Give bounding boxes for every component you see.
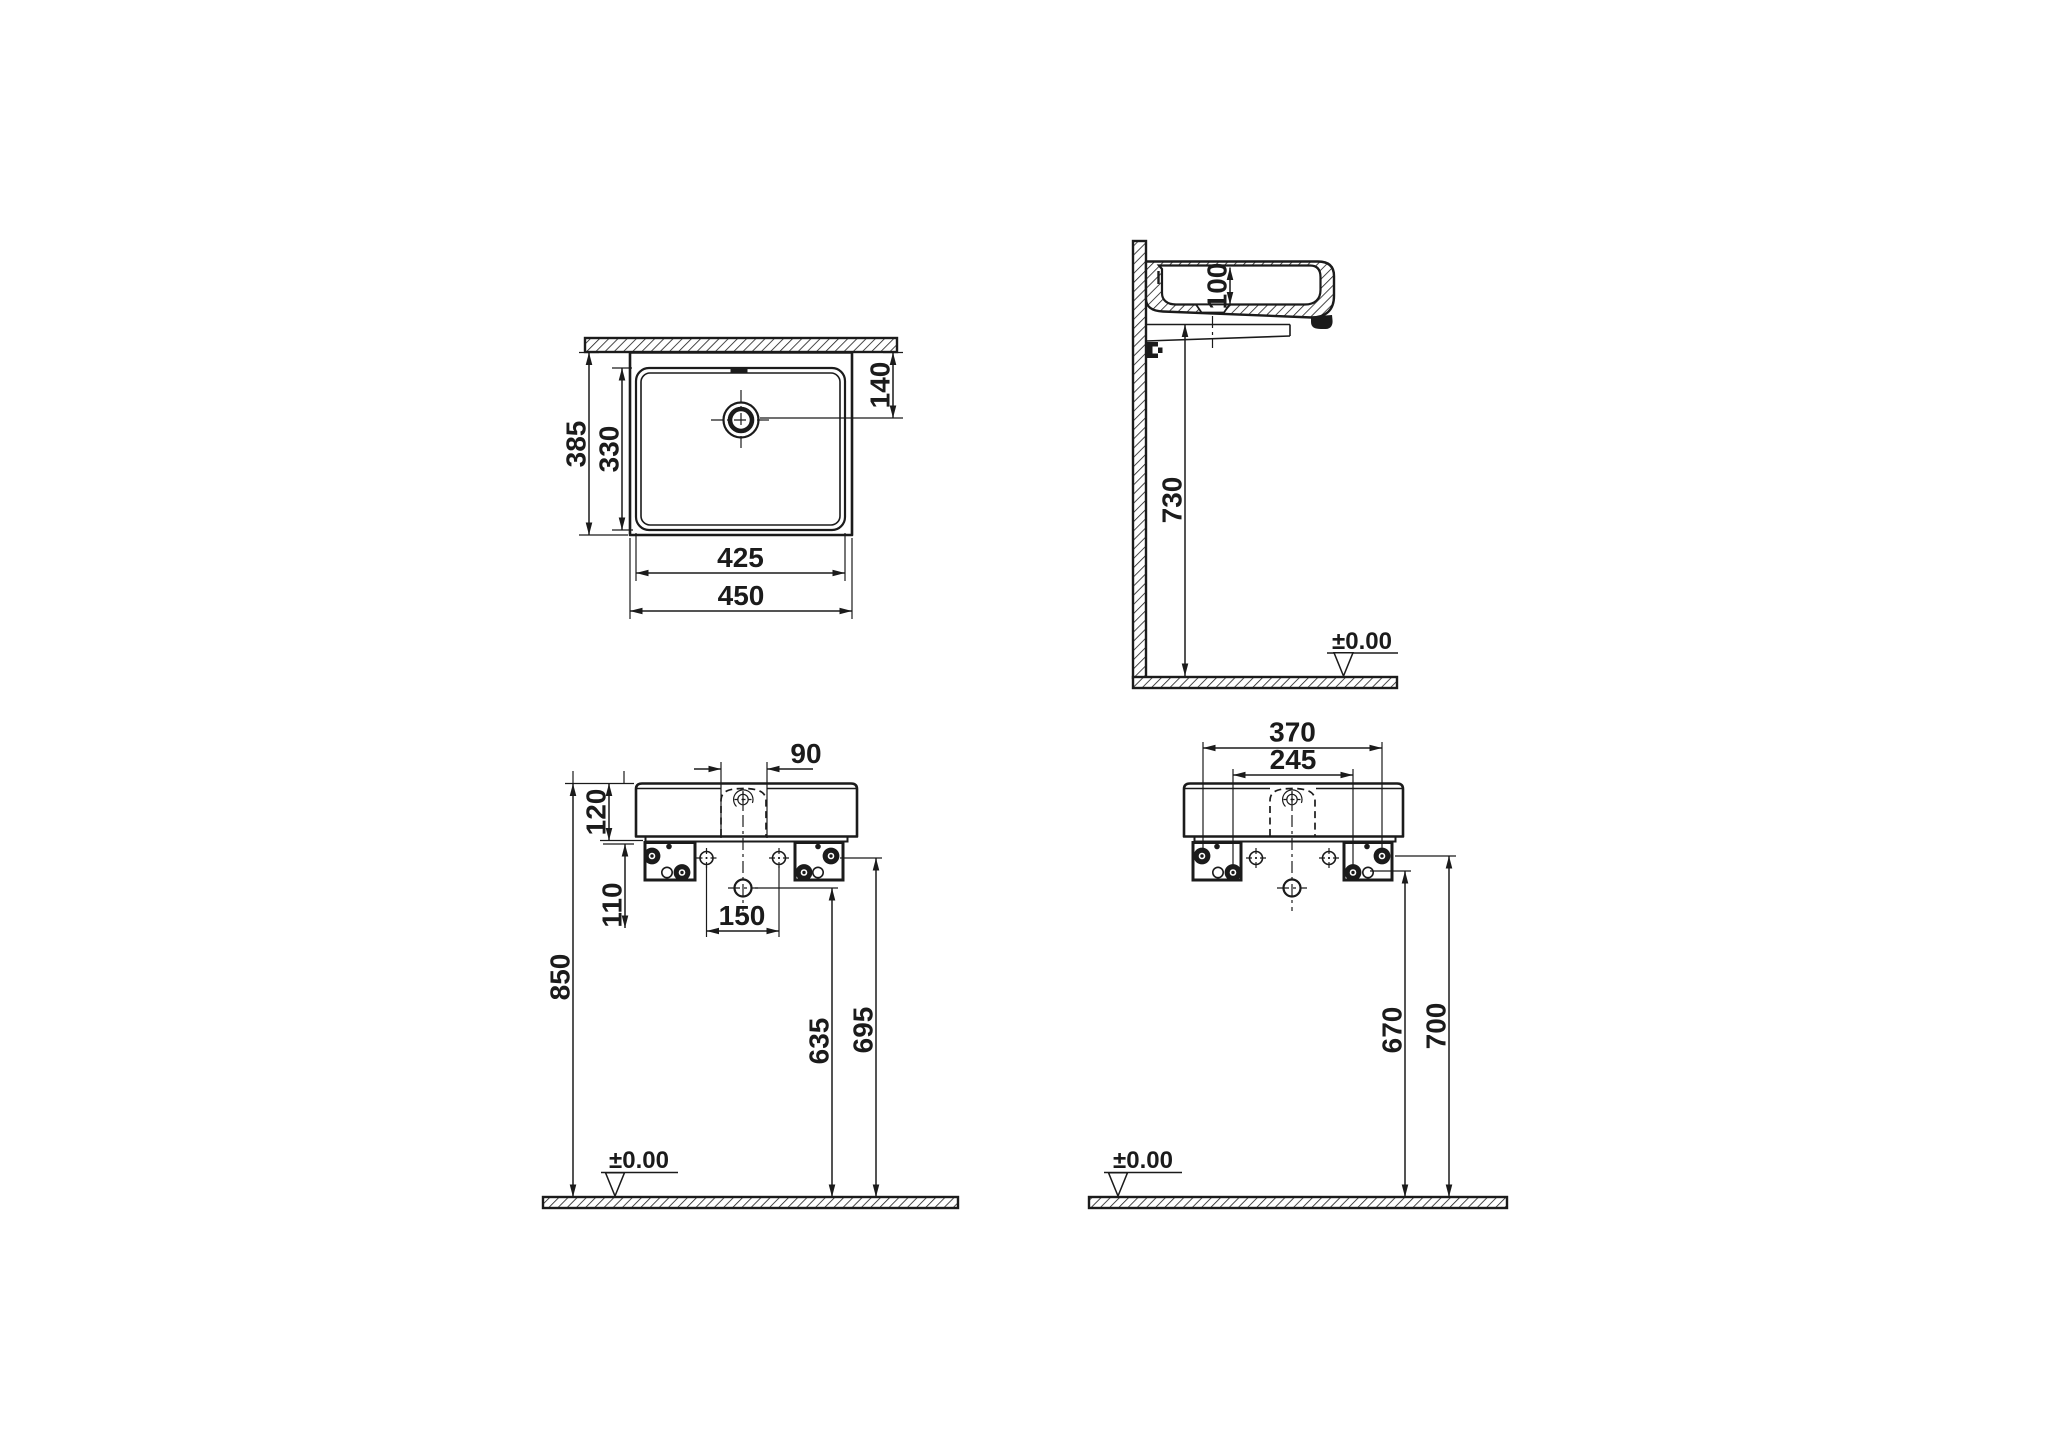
dim-rear-span-outer: 370 bbox=[1269, 717, 1316, 748]
drawing-sheet: 385 330 140 425 450 bbox=[0, 0, 2048, 1449]
dim-side-basin-depth: 100 bbox=[1202, 263, 1233, 310]
support-plate bbox=[1146, 325, 1290, 342]
dim-plan-outer-width: 450 bbox=[718, 580, 765, 611]
overflow-slot bbox=[731, 369, 748, 374]
dimension-height-lower: 670 bbox=[1370, 871, 1411, 1197]
front-rim-lip bbox=[1311, 315, 1333, 329]
dimension-body-height: 120 bbox=[565, 771, 643, 841]
wall-bracket-side bbox=[1146, 342, 1163, 358]
floor-section bbox=[1133, 677, 1397, 688]
rear-view: 370 245 670 700 ±0.00 bbox=[1089, 717, 1507, 1209]
dim-front-body-height: 120 bbox=[581, 789, 612, 836]
dim-front-bolt-height: 695 bbox=[848, 1007, 879, 1054]
floor-section bbox=[543, 1197, 958, 1208]
dimension-hole-spacing: 150 bbox=[707, 866, 780, 937]
datum-marker: ±0.00 bbox=[1327, 628, 1398, 676]
wall-section bbox=[585, 338, 897, 352]
datum-label: ±0.00 bbox=[1332, 628, 1392, 655]
dim-plan-outer-depth: 385 bbox=[561, 421, 592, 468]
wall-section bbox=[1133, 241, 1146, 678]
dim-rear-span-inner: 245 bbox=[1270, 744, 1317, 775]
datum-label: ±0.00 bbox=[609, 1147, 669, 1174]
dim-front-overflow-width: 90 bbox=[790, 738, 821, 769]
dimension-drain-center-height: 635 bbox=[755, 888, 838, 1197]
basin-body bbox=[636, 784, 857, 837]
basin-section bbox=[1146, 262, 1334, 349]
floor-section bbox=[1089, 1197, 1507, 1208]
dim-rear-height-lower: 670 bbox=[1377, 1007, 1408, 1054]
datum-label: ±0.00 bbox=[1113, 1147, 1173, 1174]
front-view: 90 120 110 150 850 635 695 ±0.00 bbox=[543, 738, 958, 1208]
dim-front-rim-height: 850 bbox=[545, 954, 576, 1001]
dimension-bracket-bolt-height: 695 bbox=[840, 858, 882, 1197]
dimension-basin-depth: 100 bbox=[1202, 263, 1233, 310]
dim-front-bracket-drop: 110 bbox=[597, 882, 628, 927]
dim-front-hole-spacing: 150 bbox=[719, 900, 766, 931]
dim-rear-height-upper: 700 bbox=[1421, 1003, 1452, 1050]
basin-body bbox=[1184, 784, 1403, 837]
dim-front-drain-height: 635 bbox=[804, 1018, 835, 1065]
plan-view: 385 330 140 425 450 bbox=[561, 338, 904, 619]
datum-marker: ±0.00 bbox=[1104, 1147, 1182, 1196]
dimension-underside-height: 730 bbox=[1157, 325, 1188, 677]
dim-side-underside-height: 730 bbox=[1157, 477, 1188, 524]
technical-drawing: 385 330 140 425 450 bbox=[0, 0, 2048, 1449]
dim-plan-drain-offset: 140 bbox=[865, 362, 896, 409]
dim-plan-inner-width: 425 bbox=[717, 542, 764, 573]
dimension-bracket-drop: 110 bbox=[597, 844, 635, 928]
side-view: 100 730 ±0.00 bbox=[1133, 241, 1398, 688]
dimension-inner-depth: 330 bbox=[594, 368, 634, 530]
dimension-rim-height: 850 bbox=[545, 771, 576, 1197]
dimension-inner-width: 425 bbox=[636, 533, 845, 581]
datum-marker: ±0.00 bbox=[601, 1147, 678, 1196]
dim-plan-inner-depth: 330 bbox=[594, 426, 625, 473]
